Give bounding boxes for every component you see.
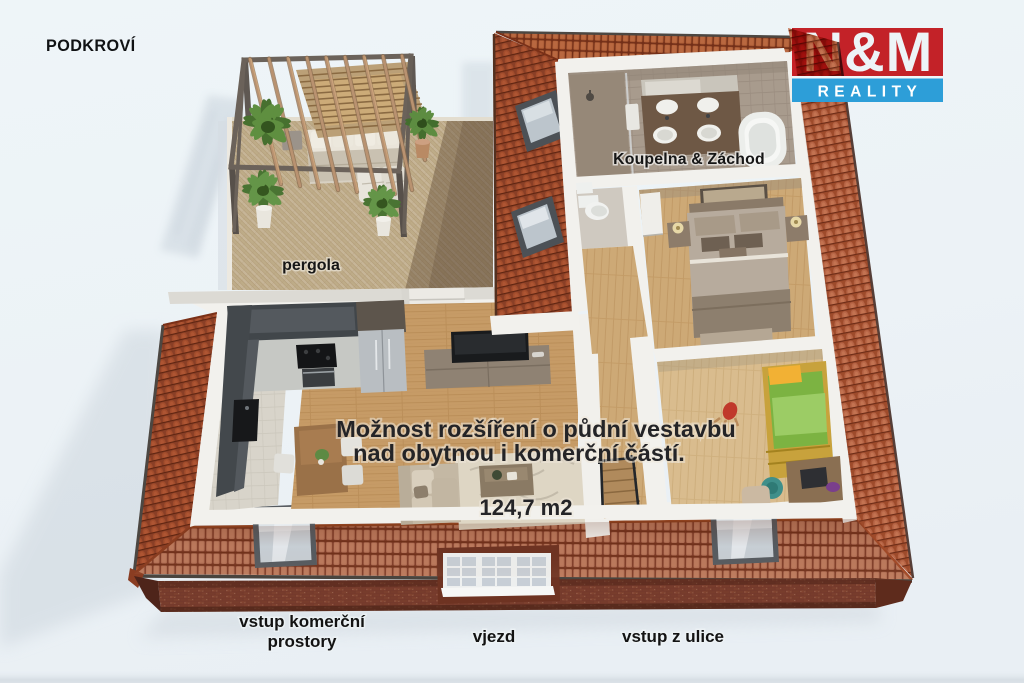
svg-text:Možnost rozšíření o půdní ves: Možnost rozšíření o půdní vestavbu (336, 416, 736, 442)
svg-text:PODKROVÍ: PODKROVÍ (46, 36, 136, 55)
svg-text:Koupelna & Záchod: Koupelna & Záchod (613, 151, 765, 168)
svg-text:pergola: pergola (282, 257, 340, 274)
svg-text:124,7 m2: 124,7 m2 (480, 495, 573, 520)
svg-text:nad obytnou i komerční částí.: nad obytnou i komerční částí. (353, 440, 685, 466)
svg-text:vstup komerční: vstup komerční (239, 612, 366, 631)
svg-text:vstup z ulice: vstup z ulice (622, 627, 724, 646)
svg-text:N&M: N&M (803, 20, 934, 83)
svg-text:REALITY: REALITY (818, 84, 923, 101)
svg-text:prostory: prostory (268, 632, 338, 651)
svg-text:vjezd: vjezd (473, 627, 516, 646)
